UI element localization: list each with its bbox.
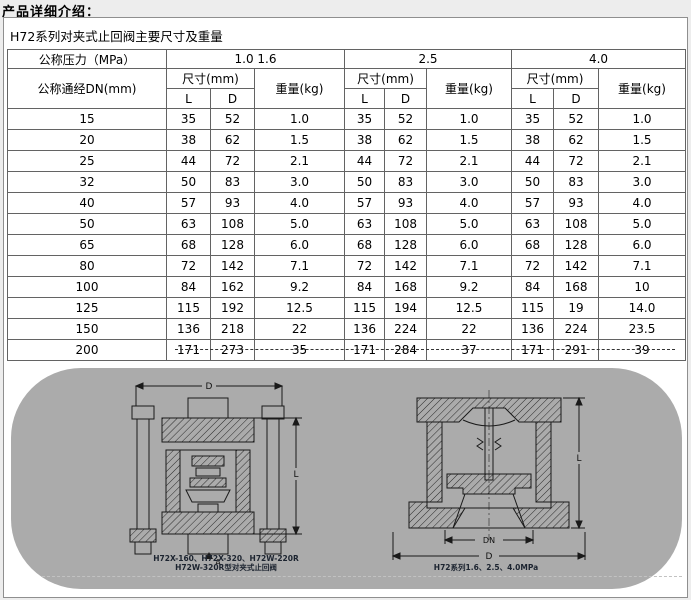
value-cell: 62	[385, 130, 427, 151]
value-cell: 162	[211, 277, 255, 298]
bottom-dashed-separator	[42, 576, 682, 577]
value-cell: 136	[345, 319, 385, 340]
pressure-group-3: 4.0	[512, 50, 686, 69]
value-cell: 218	[211, 319, 255, 340]
value-cell: 52	[211, 109, 255, 130]
value-cell: 68	[167, 235, 211, 256]
value-cell: 284	[385, 340, 427, 361]
value-cell: 23.5	[599, 319, 686, 340]
dn-cell: 50	[8, 214, 167, 235]
value-cell: 7.1	[255, 256, 345, 277]
value-cell: 1.5	[427, 130, 512, 151]
value-cell: 63	[167, 214, 211, 235]
value-cell: 37	[427, 340, 512, 361]
table-row: 3250833.050833.050833.0	[8, 172, 686, 193]
weight-label-3: 重量(kg)	[599, 69, 686, 109]
spec-table: 公称压力（MPa） 1.0 1.6 2.5 4.0 公称通经DN(mm) 尺寸(…	[7, 49, 686, 361]
value-cell: 108	[385, 214, 427, 235]
value-cell: 128	[554, 235, 599, 256]
value-cell: 1.0	[255, 109, 345, 130]
table-row: 80721427.1721427.1721427.1	[8, 256, 686, 277]
dim-l-label: L	[293, 470, 298, 480]
value-cell: 128	[385, 235, 427, 256]
dim-l-label: L	[576, 454, 581, 464]
dim-d-label: D	[206, 382, 213, 392]
value-cell: 168	[554, 277, 599, 298]
value-cell: 7.1	[599, 256, 686, 277]
value-cell: 35	[512, 109, 554, 130]
value-cell: 108	[554, 214, 599, 235]
value-cell: 115	[512, 298, 554, 319]
left-caption-line2: H72W-320R型对夹式止回阀	[96, 563, 356, 572]
left-bolt	[130, 406, 156, 554]
value-cell: 72	[512, 256, 554, 277]
value-cell: 84	[345, 277, 385, 298]
value-cell: 128	[211, 235, 255, 256]
value-cell: 62	[554, 130, 599, 151]
weight-label-2: 重量(kg)	[427, 69, 512, 109]
value-cell: 9.2	[427, 277, 512, 298]
value-cell: 12.5	[427, 298, 512, 319]
col-l-3: L	[512, 89, 554, 109]
value-cell: 168	[385, 277, 427, 298]
value-cell: 38	[512, 130, 554, 151]
value-cell: 44	[167, 151, 211, 172]
value-cell: 273	[211, 340, 255, 361]
value-cell: 1.0	[599, 109, 686, 130]
pressure-group-1: 1.0 1.6	[167, 50, 345, 69]
table-row: 4057934.057934.057934.0	[8, 193, 686, 214]
size-label-2: 尺寸(mm)	[345, 69, 427, 89]
col-d-1: D	[211, 89, 255, 109]
value-cell: 57	[512, 193, 554, 214]
value-cell: 136	[512, 319, 554, 340]
table-row: 200171273351712843717129139	[8, 340, 686, 361]
value-cell: 3.0	[427, 172, 512, 193]
table-row: 12511519212.511519412.51151914.0	[8, 298, 686, 319]
header-row-size: 公称通经DN(mm) 尺寸(mm) 重量(kg) 尺寸(mm) 重量(kg) 尺…	[8, 69, 686, 89]
col-d-2: D	[385, 89, 427, 109]
value-cell: 50	[512, 172, 554, 193]
value-cell: 72	[385, 151, 427, 172]
value-cell: 115	[345, 298, 385, 319]
value-cell: 1.5	[255, 130, 345, 151]
weight-label-1: 重量(kg)	[255, 69, 345, 109]
value-cell: 5.0	[599, 214, 686, 235]
value-cell: 52	[554, 109, 599, 130]
right-drawing-caption: H72系列1.6、2.5、4.0MPa	[366, 563, 606, 572]
value-cell: 5.0	[255, 214, 345, 235]
table-caption: H72系列对夹式止回阀主要尺寸及重量	[10, 26, 223, 45]
value-cell: 84	[512, 277, 554, 298]
dn-cell: 40	[8, 193, 167, 214]
right-valve-drawing: L DN D	[379, 390, 604, 562]
col-d-3: D	[554, 89, 599, 109]
value-cell: 291	[554, 340, 599, 361]
dn-cell: 100	[8, 277, 167, 298]
value-cell: 142	[385, 256, 427, 277]
dn-cell: 150	[8, 319, 167, 340]
value-cell: 6.0	[255, 235, 345, 256]
value-cell: 4.0	[427, 193, 512, 214]
value-cell: 4.0	[255, 193, 345, 214]
table-row: 100841629.2841689.28416810	[8, 277, 686, 298]
value-cell: 57	[345, 193, 385, 214]
value-cell: 142	[554, 256, 599, 277]
dn-label: 公称通经DN(mm)	[8, 69, 167, 109]
value-cell: 57	[167, 193, 211, 214]
dn-cell: 65	[8, 235, 167, 256]
size-label-3: 尺寸(mm)	[512, 69, 599, 89]
value-cell: 6.0	[599, 235, 686, 256]
table-row: 50631085.0631085.0631085.0	[8, 214, 686, 235]
product-drawings-image: D	[11, 368, 682, 589]
dim-d-label: D	[486, 552, 493, 562]
left-valve-drawing: D	[106, 376, 311, 568]
value-cell: 22	[427, 319, 512, 340]
valve-internals	[186, 456, 230, 512]
pressure-group-2: 2.5	[345, 50, 512, 69]
value-cell: 68	[512, 235, 554, 256]
value-cell: 194	[385, 298, 427, 319]
content-box: H72系列对夹式止回阀主要尺寸及重量 公称压力（MPa） 1.0 1.6 2.5…	[3, 17, 688, 598]
value-cell: 9.2	[255, 277, 345, 298]
value-cell: 72	[167, 256, 211, 277]
right-bolt	[260, 406, 286, 554]
value-cell: 2.1	[255, 151, 345, 172]
value-cell: 35	[345, 109, 385, 130]
value-cell: 108	[211, 214, 255, 235]
pressure-label: 公称压力（MPa）	[8, 50, 167, 69]
dn-cell: 80	[8, 256, 167, 277]
col-l-1: L	[167, 89, 211, 109]
table-row: 65681286.0681286.0681286.0	[8, 235, 686, 256]
left-drawing-caption: H72X-160、H72X-320、H72W-220R H72W-320R型对夹…	[96, 554, 356, 573]
value-cell: 72	[345, 256, 385, 277]
value-cell: 84	[167, 277, 211, 298]
value-cell: 171	[512, 340, 554, 361]
value-cell: 35	[255, 340, 345, 361]
value-cell: 38	[167, 130, 211, 151]
value-cell: 44	[345, 151, 385, 172]
value-cell: 63	[345, 214, 385, 235]
value-cell: 115	[167, 298, 211, 319]
value-cell: 35	[167, 109, 211, 130]
stem-spring	[463, 408, 515, 480]
dn-cell: 125	[8, 298, 167, 319]
value-cell: 14.0	[599, 298, 686, 319]
value-cell: 44	[512, 151, 554, 172]
value-cell: 93	[211, 193, 255, 214]
image-top-dashed-line	[175, 349, 675, 350]
value-cell: 1.0	[427, 109, 512, 130]
dim-dn-label: DN	[483, 536, 495, 545]
value-cell: 22	[255, 319, 345, 340]
header-row-pressure: 公称压力（MPa） 1.0 1.6 2.5 4.0	[8, 50, 686, 69]
dn-cell: 15	[8, 109, 167, 130]
value-cell: 4.0	[599, 193, 686, 214]
value-cell: 50	[345, 172, 385, 193]
value-cell: 52	[385, 109, 427, 130]
table-body: 1535521.035521.035521.02038621.538621.53…	[8, 109, 686, 361]
dn-cell: 200	[8, 340, 167, 361]
value-cell: 93	[554, 193, 599, 214]
table-row: 1535521.035521.035521.0	[8, 109, 686, 130]
value-cell: 1.5	[599, 130, 686, 151]
value-cell: 83	[211, 172, 255, 193]
col-l-2: L	[345, 89, 385, 109]
value-cell: 12.5	[255, 298, 345, 319]
size-label-1: 尺寸(mm)	[167, 69, 255, 89]
value-cell: 142	[211, 256, 255, 277]
table-row: 150136218221362242213622423.5	[8, 319, 686, 340]
value-cell: 39	[599, 340, 686, 361]
value-cell: 68	[345, 235, 385, 256]
value-cell: 19	[554, 298, 599, 319]
value-cell: 83	[554, 172, 599, 193]
value-cell: 72	[554, 151, 599, 172]
value-cell: 62	[211, 130, 255, 151]
value-cell: 224	[385, 319, 427, 340]
value-cell: 38	[345, 130, 385, 151]
value-cell: 3.0	[255, 172, 345, 193]
dn-cell: 32	[8, 172, 167, 193]
left-caption-line1: H72X-160、H72X-320、H72W-220R	[96, 554, 356, 563]
value-cell: 93	[385, 193, 427, 214]
value-cell: 171	[345, 340, 385, 361]
value-cell: 224	[554, 319, 599, 340]
value-cell: 63	[512, 214, 554, 235]
value-cell: 3.0	[599, 172, 686, 193]
value-cell: 7.1	[427, 256, 512, 277]
value-cell: 83	[385, 172, 427, 193]
table-row: 2038621.538621.538621.5	[8, 130, 686, 151]
dn-cell: 25	[8, 151, 167, 172]
value-cell: 6.0	[427, 235, 512, 256]
value-cell: 72	[211, 151, 255, 172]
value-cell: 10	[599, 277, 686, 298]
value-cell: 2.1	[599, 151, 686, 172]
table-row: 2544722.144722.144722.1	[8, 151, 686, 172]
value-cell: 171	[167, 340, 211, 361]
value-cell: 192	[211, 298, 255, 319]
dn-cell: 20	[8, 130, 167, 151]
value-cell: 50	[167, 172, 211, 193]
value-cell: 5.0	[427, 214, 512, 235]
value-cell: 2.1	[427, 151, 512, 172]
value-cell: 136	[167, 319, 211, 340]
